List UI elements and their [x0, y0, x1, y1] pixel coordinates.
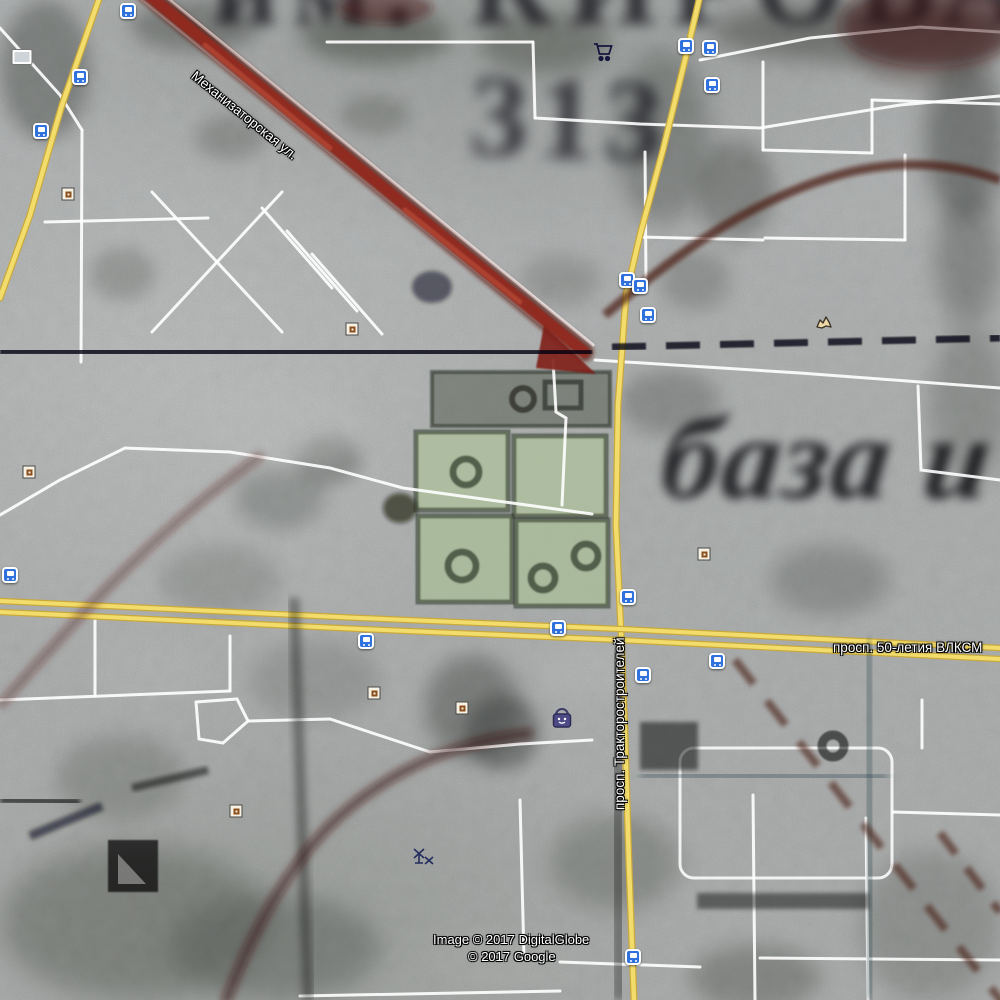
roads-overlay — [0, 0, 1000, 1000]
transit-stop-icon[interactable] — [33, 123, 49, 139]
transit-stop-icon[interactable] — [2, 567, 18, 583]
poi-marker-icon[interactable] — [62, 188, 75, 201]
transit-stop-icon[interactable] — [709, 653, 725, 669]
attribution-line1: Image © 2017 DigitalGlobe — [433, 932, 589, 947]
transit-stop-icon[interactable] — [620, 589, 636, 605]
poi-marker-icon[interactable] — [346, 323, 359, 336]
shopping-cart-icon[interactable] — [591, 40, 615, 64]
transit-stop-icon[interactable] — [72, 69, 88, 85]
transit-stop-icon[interactable] — [640, 307, 656, 323]
helicopter-icon[interactable] — [412, 847, 436, 867]
shopping-bag-icon[interactable] — [551, 706, 573, 730]
historic-park-blocks — [416, 372, 610, 606]
poi-marker-icon[interactable] — [368, 687, 381, 700]
transit-stop-icon[interactable] — [678, 38, 694, 54]
photo-icon[interactable] — [12, 49, 33, 65]
transit-stop-icon[interactable] — [635, 667, 651, 683]
attribution-line2: © 2017 Google — [468, 949, 556, 964]
poi-marker-icon[interactable] — [698, 548, 711, 561]
map-canvas[interactable]: им. КИРОВА 313 база и — [0, 0, 1000, 1000]
transit-stop-icon[interactable] — [550, 620, 566, 636]
transit-stop-icon[interactable] — [702, 40, 718, 56]
transit-stop-icon[interactable] — [704, 77, 720, 93]
transit-stop-icon[interactable] — [358, 633, 374, 649]
poi-marker-icon[interactable] — [230, 805, 243, 818]
transit-stop-icon[interactable] — [120, 3, 136, 19]
poi-marker-icon[interactable] — [23, 466, 36, 479]
poi-marker-icon[interactable] — [456, 702, 469, 715]
transit-stop-icon[interactable] — [625, 949, 641, 965]
animal-icon[interactable] — [814, 313, 834, 331]
transit-stop-icon[interactable] — [632, 278, 648, 294]
